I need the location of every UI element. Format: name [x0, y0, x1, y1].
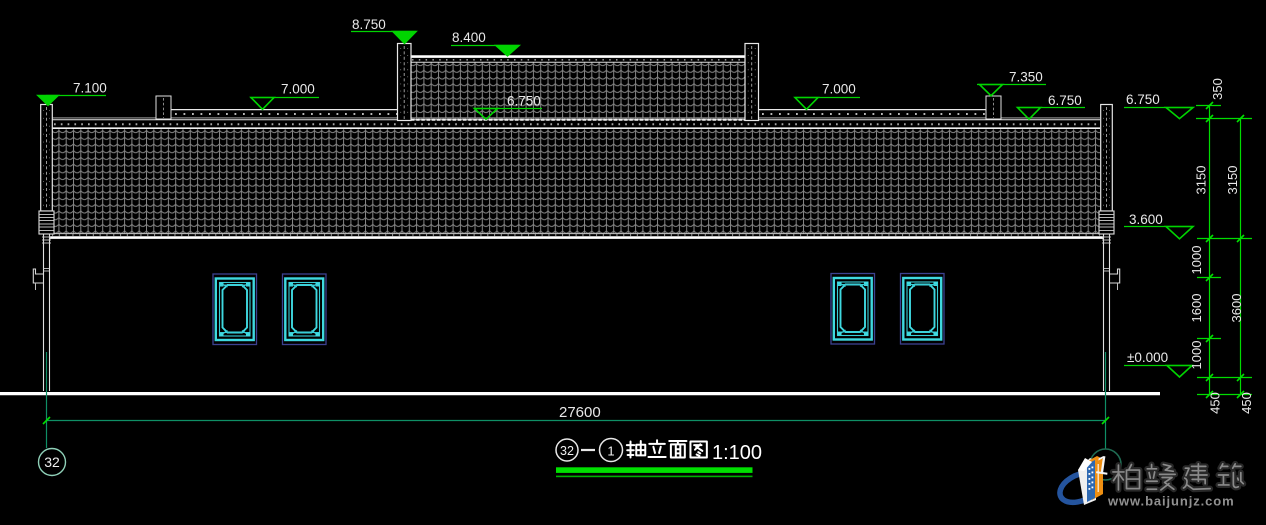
svg-text:1: 1 [607, 444, 614, 459]
svg-text:7.100: 7.100 [73, 81, 107, 96]
svg-text:1000: 1000 [1189, 341, 1204, 370]
svg-text:3600: 3600 [1229, 294, 1244, 323]
svg-text:450: 450 [1239, 392, 1254, 414]
svg-text:32: 32 [560, 444, 574, 458]
svg-text:6.750: 6.750 [507, 94, 541, 109]
svg-text:3.600: 3.600 [1129, 212, 1163, 227]
svg-text:1600: 1600 [1189, 294, 1204, 323]
svg-text:450: 450 [1208, 392, 1223, 414]
svg-text:3150: 3150 [1225, 166, 1240, 195]
svg-text:1:100: 1:100 [712, 442, 762, 464]
svg-text:±0.000: ±0.000 [1127, 350, 1168, 365]
svg-text:1000: 1000 [1189, 246, 1204, 275]
svg-text:7.000: 7.000 [281, 82, 315, 97]
svg-text:350: 350 [1210, 78, 1225, 100]
svg-text:6.750: 6.750 [1048, 93, 1082, 108]
svg-text:www.baijunjz.com: www.baijunjz.com [1107, 494, 1235, 509]
svg-text:7.000: 7.000 [822, 82, 856, 97]
svg-text:27600: 27600 [559, 404, 601, 421]
svg-text:6.750: 6.750 [1126, 92, 1160, 107]
svg-text:3150: 3150 [1194, 166, 1209, 195]
svg-text:7.350: 7.350 [1009, 70, 1043, 85]
svg-text:32: 32 [44, 454, 60, 470]
svg-text:8.400: 8.400 [452, 30, 486, 45]
svg-text:8.750: 8.750 [352, 17, 386, 32]
